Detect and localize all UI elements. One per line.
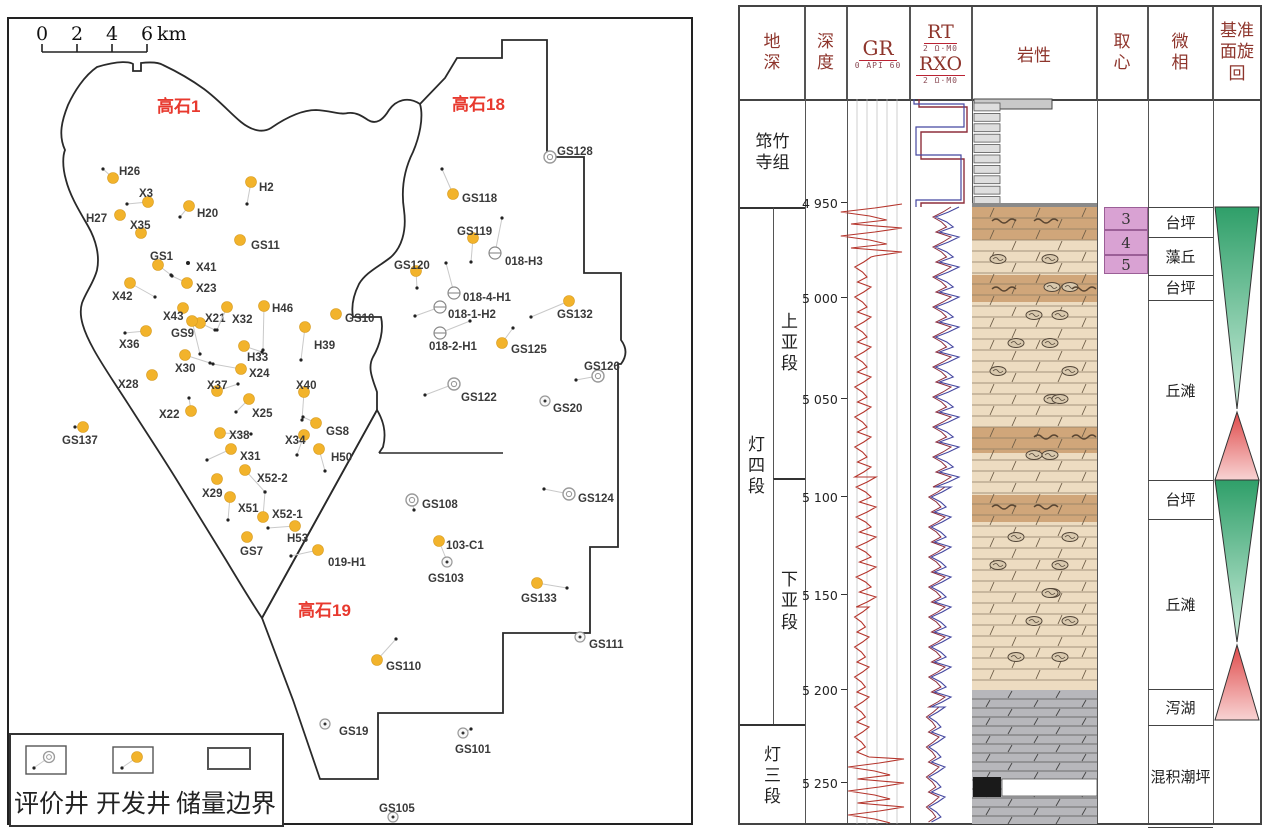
scale-unit: km [157,23,187,45]
well-X52-2[interactable]: X52-2 [240,465,288,494]
cycle-triangle-fall [1215,480,1259,642]
well-label: 018-4-H1 [463,292,512,304]
well-X23[interactable]: X23 [170,274,216,295]
well-label: GS103 [428,573,464,585]
well-X40[interactable]: X40 [296,380,316,422]
well-X24[interactable]: X24 [211,362,270,380]
well-label: X22 [159,409,179,421]
well-X34[interactable]: X34 [285,430,310,457]
well-label: X34 [285,435,306,447]
well-X22[interactable]: X22 [159,396,197,421]
cycle-triangle-rise [1215,645,1259,720]
facies-cell-台坪: 台坪 [1148,480,1213,519]
area-label: 高石18 [452,94,505,114]
formation-cell-灯四段: 灯四段 [740,207,773,724]
well-X28[interactable]: X28 [118,370,158,392]
well-X42[interactable]: X42 [112,278,157,304]
well-label: X41 [196,262,217,274]
well-018-1-H2[interactable]: 018-1-H2 [413,301,496,321]
well-label: GS133 [521,593,557,605]
well-label: X36 [119,339,139,351]
well-X29[interactable]: X29 [202,474,223,501]
well-H2[interactable]: H2 [245,177,273,206]
well-GS110[interactable]: GS110 [372,637,422,673]
well-label: GS20 [553,403,582,415]
well-H27[interactable]: H27 [86,210,126,226]
scale-bar: 0246km [36,23,187,52]
well-GS103[interactable]: GS103 [428,557,464,585]
map-canvas: 0246km 高石1高石18高石19 H26X3H2H27H20X35GS11G… [0,0,700,828]
well-GS133[interactable]: GS133 [521,578,569,606]
well-X37[interactable]: X37 [207,380,240,397]
well-label: H46 [272,303,293,315]
well-H53[interactable]: H53 [266,521,308,546]
well-label: GS126 [584,361,620,373]
well-label: GS118 [462,193,498,205]
facies-cell-丘滩: 丘滩 [1148,300,1213,480]
well-103-C1[interactable]: 103-C1 [434,536,485,563]
well-X41[interactable]: X41 [186,261,217,274]
well-label: GS110 [386,661,421,673]
well-label: GS11 [251,240,280,252]
well-GS108[interactable]: GS108 [406,494,458,512]
well-label: 019-H1 [328,557,366,569]
scale-number: 0 [36,23,48,45]
well-label: GS132 [557,309,593,321]
well-GS120[interactable]: GS120 [394,260,430,290]
figure-root: { "map": { "scalebar": {"labels": ["0","… [0,0,1269,828]
well-label: X24 [249,368,270,380]
facies-cell-丘滩: 丘滩 [1148,519,1213,689]
well-label: GS19 [339,726,368,738]
well-018-2-H1[interactable]: 018-2-H1 [429,319,478,353]
well-label: 018-1-H2 [448,309,496,321]
well-GS137[interactable]: GS137 [62,422,98,448]
depth-tick-5 050: 5 050 [802,392,847,406]
core-box-5: 5 [1104,255,1148,274]
well-label: GS1 [150,251,174,263]
depth-tick-5 100: 5 100 [802,490,847,504]
legend-label-2: 储量边界 [176,789,276,818]
well-GS20[interactable]: GS20 [540,396,582,415]
legend-label-0: 评价井 [14,789,89,818]
depth-tick-4 950: 4 950 [802,196,847,210]
well-label: X23 [196,283,216,295]
well-label: H50 [331,452,352,464]
well-H26[interactable]: H26 [101,166,140,184]
well-label: GS111 [589,639,624,651]
map-legend: 评价井开发井储量边界 [10,734,283,826]
well-GS132[interactable]: GS132 [529,296,592,322]
well-018-H3[interactable]: 018-H3 [489,216,543,268]
well-label: 018-2-H1 [429,341,478,353]
cycle-triangle-fall [1215,207,1259,409]
well-X35[interactable]: X35 [130,220,151,239]
facies-cell-台坪: 台坪 [1148,275,1213,300]
well-label: GS105 [379,803,415,815]
scale-number: 4 [106,23,118,45]
well-label: X43 [163,311,183,323]
facies-cell-混积潮坪: 混积潮坪 [1148,725,1213,827]
well-label: 018-H3 [505,256,543,268]
well-GS11[interactable]: GS11 [235,235,281,253]
well-X21[interactable]: X21 [195,313,227,332]
facies-cell-泻湖: 泻湖 [1148,689,1213,725]
formation-cell-下亚段: 下亚段 [773,478,805,724]
well-label: X28 [118,379,139,391]
well-H39[interactable]: H39 [299,322,335,362]
core-box-3: 3 [1104,207,1148,230]
formation-cell-灯三段: 灯三段 [740,724,805,827]
well-X52-1[interactable]: X52-1 [258,490,304,522]
well-GS126[interactable]: GS126 [574,361,619,382]
scale-number: 6 [141,23,153,45]
well-GS19[interactable]: GS19 [320,719,368,738]
well-GS122[interactable]: GS122 [423,378,496,404]
well-X3[interactable]: X3 [125,188,153,208]
well-label: H27 [86,213,107,225]
well-label: GS124 [578,493,614,505]
well-X51[interactable]: X51 [225,492,260,522]
well-label: X30 [175,363,195,375]
well-018-4-H1[interactable]: 018-4-H1 [444,261,511,304]
map-frame [8,18,692,824]
well-X38[interactable]: X38 [215,428,253,443]
formation-cell-上亚段: 上亚段 [773,207,805,478]
well-GS7[interactable]: GS7 [240,532,263,559]
well-H20[interactable]: H20 [178,201,218,221]
well-label: H2 [259,182,274,194]
depth-tick-5 000: 5 000 [802,291,847,305]
well-label: GS8 [326,426,350,438]
well-label: GS9 [171,328,194,340]
well-X31[interactable]: X31 [205,444,261,464]
well-label: 103-C1 [446,540,484,552]
reserve-boundaries [61,40,625,779]
well-label: X52-1 [272,509,303,521]
well-X25[interactable]: X25 [234,394,273,421]
well-label: GS120 [394,260,430,272]
well-label: H33 [247,352,268,364]
well-label: X35 [130,220,151,232]
well-label: H39 [314,340,335,352]
depth-tick-5 200: 5 200 [802,683,847,697]
facies-cell-台坪: 台坪 [1148,207,1213,237]
well-GS118[interactable]: GS118 [440,167,497,205]
well-GS124[interactable]: GS124 [542,487,614,505]
gr-curve [841,204,904,823]
well-label: X52-2 [257,473,288,485]
well-label: X38 [229,430,250,442]
well-label: X29 [202,488,222,500]
legend-label-1: 开发井 [96,789,171,818]
well-label: X32 [232,314,252,326]
area-label: 高石19 [298,600,351,620]
well-GS128[interactable]: GS128 [544,146,593,163]
well-label: X21 [205,313,226,325]
well-label: H20 [197,208,218,220]
well-label: X37 [207,380,227,392]
facies-cell-藻丘: 藻丘 [1148,237,1213,275]
well-label: X42 [112,291,132,303]
scale-number: 2 [71,23,83,45]
well-label: GS10 [345,313,374,325]
well-X30[interactable]: X30 [175,350,212,376]
wells-layer: H26X3H2H27H20X35GS11GS1X41X23X42X43X21X3… [62,146,624,822]
field-outline-gaoshi1 [61,62,421,618]
well-GS105[interactable]: GS105 [379,803,415,822]
formation-cell-筇竹寺组: 筇竹寺组 [740,99,805,207]
well-label: GS101 [455,744,491,756]
well-GS101[interactable]: GS101 [455,727,491,756]
stratigraphic-column: 地深 深度 GR 0 API 60 RT 2 Ω·M0 RXO 2 Ω·M0 岩… [738,5,1262,825]
well-X36[interactable]: X36 [119,326,152,352]
well-location-map: 0246km 高石1高石18高石19 H26X3H2H27H20X35GS11G… [0,0,700,828]
well-label: X25 [252,408,273,420]
depth-tick-5 250: 5 250 [802,776,847,790]
rxo-curve [926,207,951,822]
area-label: 高石1 [157,96,200,116]
cycle-triangle-rise [1215,412,1259,480]
well-label: GS137 [62,435,98,447]
well-label: X3 [139,188,153,200]
well-label: X40 [296,380,316,392]
well-H33[interactable]: H33 [239,341,269,365]
well-GS1[interactable]: GS1 [150,251,174,277]
well-label: GS128 [557,146,593,158]
well-label: GS108 [422,499,458,511]
well-GS111[interactable]: GS111 [575,632,624,651]
well-label: GS122 [461,392,497,404]
well-label: H26 [119,166,140,178]
core-box-4: 4 [1104,230,1148,255]
well-label: H53 [287,533,308,545]
well-H50[interactable]: H50 [314,444,353,473]
rt-curve [929,207,959,822]
depth-tick-5 150: 5 150 [802,588,847,602]
well-GS119[interactable]: GS119 [457,226,492,264]
well-label: X51 [238,503,259,515]
well-label: GS125 [511,344,547,356]
well-label: GS7 [240,546,263,558]
rxo-curve-top [919,99,967,207]
well-GS125[interactable]: GS125 [497,326,548,356]
well-label: GS119 [457,226,492,238]
well-H46[interactable]: H46 [259,301,294,352]
well-label: X31 [240,451,261,463]
well-X43[interactable]: X43 [163,303,189,324]
